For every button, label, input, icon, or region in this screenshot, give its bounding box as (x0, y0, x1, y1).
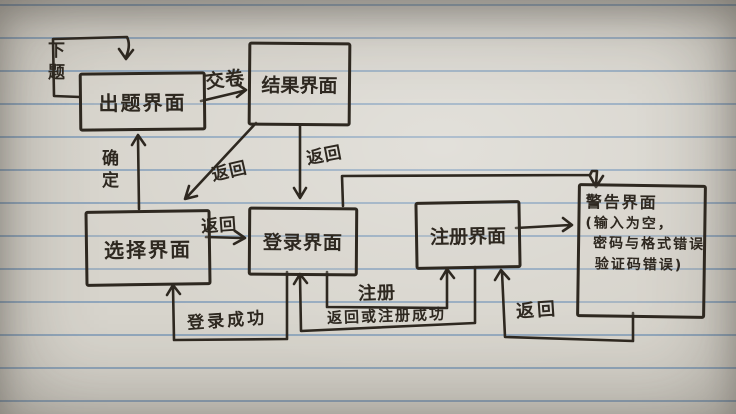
edge-label-register-action: 注册 (358, 278, 397, 305)
node-warning-screen: 警告界面 (输入为空， 密码与格式错误 验证码错误) (576, 183, 707, 319)
arrow-back-result-login (294, 126, 306, 198)
edge-label-back-select-login: 返回 (200, 210, 238, 237)
edge-label-back-warning-register: 返回 (515, 295, 559, 324)
edge-label-submit: 交卷 (204, 63, 247, 95)
node-warning-text: 警告界面 (输入为空， 密码与格式错误 验证码错误) (580, 186, 711, 280)
warning-line-4: 验证码错误) (585, 254, 705, 276)
node-login-screen: 登录界面 (248, 207, 358, 277)
warning-line-2: (输入为空， (585, 213, 705, 235)
node-login-label: 登录界面 (263, 228, 343, 256)
warning-line-1: 警告界面 (586, 190, 706, 215)
node-question-screen: 出题界面 (79, 71, 207, 131)
node-register-screen: 注册界面 (414, 200, 521, 270)
arrow-register-to-warning (516, 218, 572, 231)
warning-line-3: 密码与格式错误 (585, 234, 705, 256)
node-question-label: 出题界面 (98, 87, 186, 117)
edge-label-confirm: 确定 (102, 148, 124, 192)
node-register-label: 注册界面 (430, 221, 506, 249)
node-result-label: 结果界面 (261, 70, 337, 98)
node-result-screen: 结果界面 (248, 42, 352, 127)
arrow-confirm (132, 135, 145, 209)
notebook-paper-background: 出题界面 结果界面 选择界面 登录界面 注册界面 警告界面 (输入为空， 密码与… (0, 0, 736, 414)
node-select-screen: 选择界面 (84, 209, 211, 287)
edge-label-back-or-register-success: 返回或注册成功 (327, 303, 447, 328)
node-select-label: 选择界面 (104, 233, 192, 263)
edge-label-next-question: 下题 (48, 40, 70, 84)
